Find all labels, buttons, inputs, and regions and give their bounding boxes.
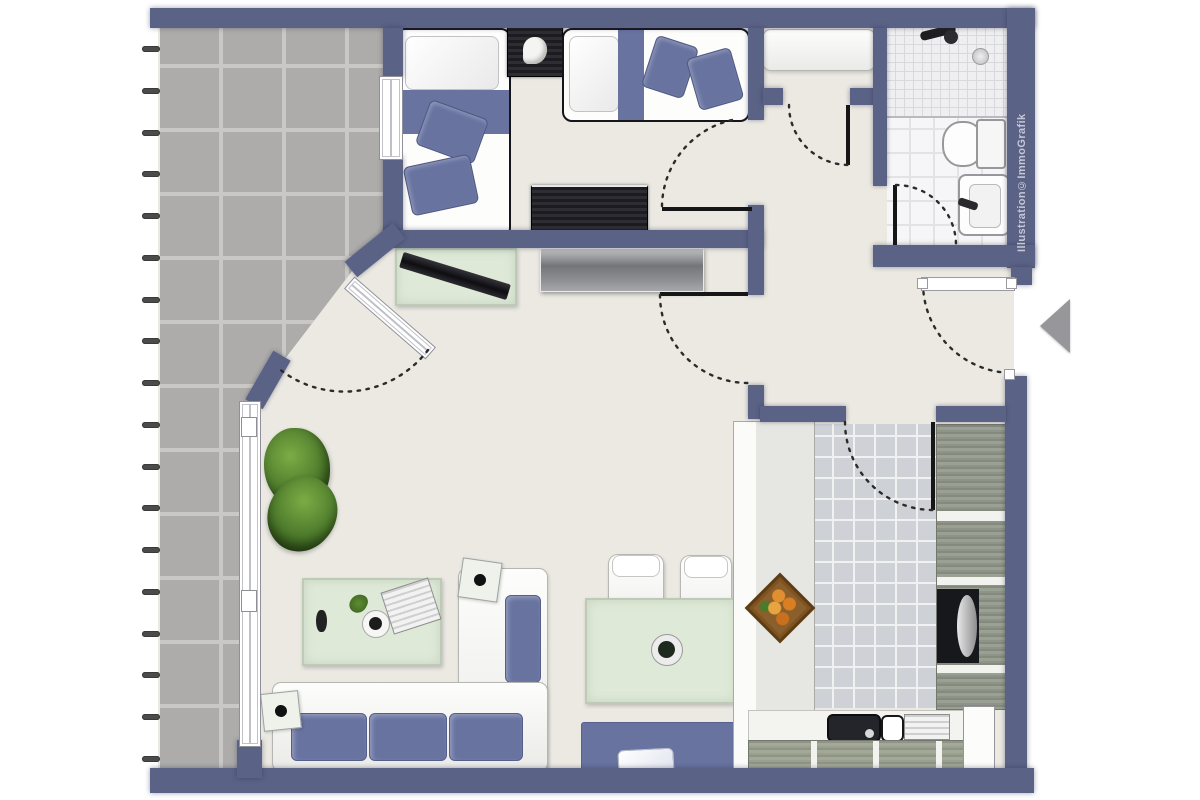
bed-pillow [405,36,499,90]
wall-bathroom-west [873,28,887,186]
wall-hall-west-b [748,205,764,295]
coffee-table [302,578,442,666]
tall-white-cabinet [963,706,995,770]
bathroom-door-leaf [893,185,897,245]
bowl-contents [658,641,675,658]
wall-bottom [150,768,1034,793]
window-handle [241,590,257,612]
dresser [531,185,648,236]
shower-drain-icon [972,48,989,65]
wall-hall-stub-west [763,88,783,105]
chair-backrest [612,555,660,577]
side-table [260,690,302,732]
tv-board [395,248,517,306]
railing-post-icon [142,46,160,52]
railing-post-icon [142,88,160,94]
railing-post-icon [142,422,160,428]
bed-pillow [569,36,619,112]
wall-hall-west-a [748,28,764,120]
shell-decor [523,37,547,64]
entrance-arrow-icon [1040,299,1070,353]
railing-post-icon [142,756,160,762]
decor-pillow [685,47,744,112]
railing-post-icon [142,213,160,219]
sink-icon [827,714,881,742]
railing-post-icon [142,547,160,553]
sofa-cushion [291,713,367,761]
cabinet-divider [811,741,817,771]
toilet-tank [976,119,1006,169]
entrance-door-hinge [917,278,928,289]
kitchen-floor [813,424,937,708]
shower-head-icon [944,30,958,44]
wardrobe-bench [762,29,876,71]
floor-plan: Illustration©ImmoGrafik [0,0,1200,800]
tv-icon [399,252,511,300]
nightstand [507,27,563,77]
railing-post-icon [142,505,160,511]
drainer-icon [904,714,950,740]
sofa-cushion [505,595,541,683]
railing-post-icon [142,380,160,386]
wall-kitchen-north-west [760,406,846,422]
railing-post-icon [142,672,160,678]
table-decor-dot [274,704,287,717]
entrance-door-leaf [921,277,1015,291]
faucet-icon [865,729,874,738]
entrance-door-hinge [1004,369,1015,380]
sofa-cushion [369,713,447,761]
terrace-railing [142,46,160,762]
bed-blanket [618,30,644,120]
sofa-base [272,682,548,772]
side-table [457,557,502,602]
railing-post-icon [142,130,160,136]
cabinet-divider [873,741,879,771]
bed-horizontal [562,28,750,122]
kitchen-worktop [748,710,964,742]
oven-door [957,595,977,657]
counter-divider [937,577,1007,585]
wall-top [150,8,1035,28]
window-handle [241,417,257,437]
bench [581,722,737,774]
bed-vertical [395,28,511,238]
bedroom-window [379,76,403,160]
window-pane-line [390,79,392,157]
oven-icon [937,589,979,663]
washbasin [958,174,1010,236]
railing-post-icon [142,464,160,470]
window-pane-line [249,404,251,744]
railing-post-icon [142,714,160,720]
small-sink-icon [881,715,904,742]
railing-post-icon [142,631,160,637]
chair-backrest [684,556,728,578]
living-room-door-leaf [660,292,748,296]
wall-bedroom-south [383,230,763,248]
hall-nook-door-leaf [846,105,850,165]
entrance-door-hinge [1006,278,1017,289]
wall-kitchen-north-east [936,406,1006,422]
dining-table [585,598,737,704]
kitchen-door-leaf [931,422,935,510]
watermark-text: Illustration©ImmoGrafik [1009,14,1035,252]
decor-pillow [403,153,480,216]
bedroom-door-leaf [662,207,752,211]
cup-contents [369,617,382,630]
kitchen-tall-cabinets [936,424,1008,710]
railing-post-icon [142,338,160,344]
railing-post-icon [142,171,160,177]
living-room-window [239,401,261,747]
railing-post-icon [142,589,160,595]
table-decor-dot [473,573,487,587]
wall-bedroom-west-upper [383,28,403,78]
railing-post-icon [142,297,160,303]
counter-divider [937,511,1007,521]
counter-divider [937,665,1007,673]
wall-hall-stub-east [850,88,873,105]
remote-icon [316,610,327,632]
cabinet-divider [936,741,942,771]
railing-post-icon [142,255,160,261]
sideboard [540,248,704,292]
sofa-cushion [449,713,523,761]
wall-right-lower [1005,376,1027,770]
